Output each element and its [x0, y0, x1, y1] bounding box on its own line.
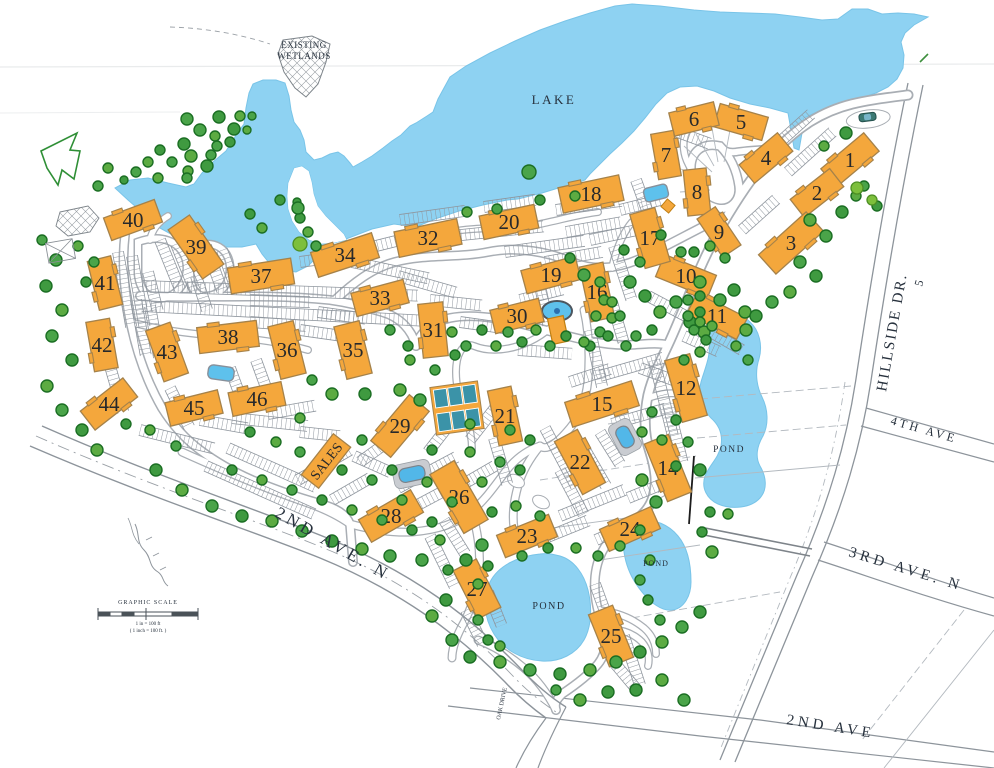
- svg-text:8: 8: [692, 180, 703, 204]
- svg-text:6: 6: [689, 107, 700, 131]
- svg-text:POND: POND: [643, 559, 669, 568]
- svg-text:9: 9: [714, 220, 725, 244]
- svg-text:EXISTING: EXISTING: [281, 40, 327, 50]
- svg-text:19: 19: [541, 263, 562, 287]
- svg-text:32: 32: [418, 226, 439, 250]
- svg-text:34: 34: [335, 243, 357, 267]
- svg-text:23: 23: [517, 524, 538, 548]
- svg-text:LAKE: LAKE: [532, 92, 577, 107]
- svg-text:38: 38: [218, 325, 239, 349]
- svg-text:3: 3: [786, 231, 797, 255]
- svg-text:43: 43: [157, 340, 178, 364]
- svg-text:4: 4: [761, 146, 772, 170]
- svg-text:( 1 inch = 100 ft. ): ( 1 inch = 100 ft. ): [130, 629, 167, 634]
- svg-text:WETLANDS: WETLANDS: [277, 51, 331, 61]
- svg-text:15: 15: [592, 392, 613, 416]
- svg-text:22: 22: [570, 450, 591, 474]
- svg-text:2: 2: [812, 181, 823, 205]
- svg-text:7: 7: [661, 143, 672, 167]
- svg-text:40: 40: [123, 208, 144, 232]
- svg-text:39: 39: [186, 235, 207, 259]
- svg-text:41: 41: [95, 271, 116, 295]
- svg-text:25: 25: [601, 624, 622, 648]
- svg-text:30: 30: [507, 304, 528, 328]
- svg-text:12: 12: [676, 376, 697, 400]
- svg-text:1 in = 100 ft: 1 in = 100 ft: [136, 622, 161, 627]
- svg-text:37: 37: [251, 264, 272, 288]
- svg-text:35: 35: [343, 338, 364, 362]
- svg-text:46: 46: [247, 387, 268, 411]
- svg-text:POND: POND: [713, 445, 745, 455]
- svg-text:5: 5: [736, 110, 747, 134]
- svg-text:42: 42: [92, 333, 113, 357]
- svg-text:44: 44: [99, 392, 121, 416]
- svg-text:29: 29: [390, 414, 411, 438]
- svg-text:21: 21: [495, 404, 516, 428]
- svg-text:1: 1: [845, 148, 856, 172]
- svg-text:45: 45: [184, 396, 205, 420]
- svg-text:POND: POND: [532, 601, 565, 612]
- svg-text:36: 36: [277, 338, 298, 362]
- svg-text:33: 33: [370, 286, 391, 310]
- svg-text:GRAPHIC SCALE: GRAPHIC SCALE: [118, 600, 178, 606]
- svg-text:31: 31: [423, 318, 444, 342]
- svg-text:20: 20: [499, 210, 520, 234]
- svg-text:10: 10: [676, 264, 697, 288]
- svg-text:18: 18: [581, 182, 602, 206]
